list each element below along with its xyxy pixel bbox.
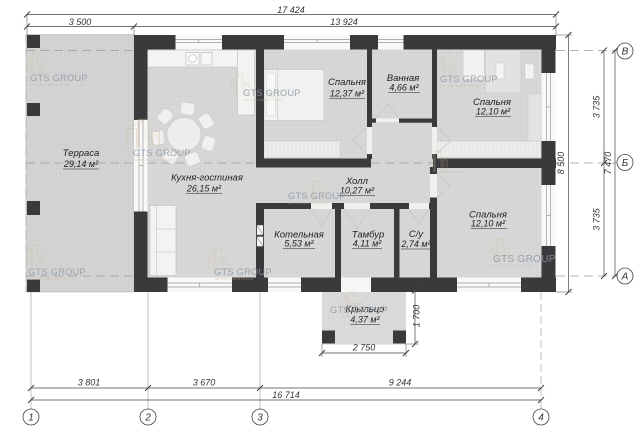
- svg-text:ВЫСТАВКА ДОМОВ РОССИИ: ВЫСТАВКА ДОМОВ РОССИИ: [28, 278, 67, 281]
- svg-text:2 750: 2 750: [352, 343, 376, 353]
- svg-text:Терраса: Терраса: [63, 148, 100, 159]
- svg-text:GTS GROUP: GTS GROUP: [133, 148, 191, 158]
- svg-text:3: 3: [257, 413, 263, 424]
- svg-text:ВЫСТАВКА ДОМОВ РОССИИ: ВЫСТАВКА ДОМОВ РОССИИ: [243, 99, 282, 102]
- svg-text:9 244: 9 244: [389, 378, 412, 388]
- svg-text:ВЫСТАВКА ДОМОВ: ВЫСТАВКА ДОМОВ: [438, 171, 464, 174]
- svg-text:3 735: 3 735: [592, 95, 602, 119]
- svg-text:4,11 м²: 4,11 м²: [353, 239, 383, 249]
- svg-text:29,14 м²: 29,14 м²: [63, 159, 99, 169]
- svg-text:12,37 м²: 12,37 м²: [330, 89, 365, 99]
- svg-text:ВЫСТАВКА ДОМОВ РОССИИ: ВЫСТАВКА ДОМОВ РОССИИ: [133, 159, 172, 162]
- svg-text:4,37 м²: 4,37 м²: [350, 315, 380, 325]
- svg-text:12,10 м²: 12,10 м²: [476, 107, 511, 117]
- svg-text:Кухня-гостиная: Кухня-гостиная: [171, 173, 243, 184]
- svg-text:В: В: [622, 47, 629, 58]
- svg-text:1 700: 1 700: [412, 305, 422, 328]
- svg-text:3 735: 3 735: [592, 207, 602, 231]
- svg-text:GTS GROUP: GTS GROUP: [214, 267, 272, 277]
- svg-text:ВЫСТАВКА ДОМОВ РОССИИ: ВЫСТАВКА ДОМОВ РОССИИ: [30, 84, 69, 87]
- svg-text:2,74 м²: 2,74 м²: [400, 239, 431, 249]
- svg-text:GTS GROUP: GTS GROUP: [288, 191, 346, 201]
- svg-text:GTS GROUP: GTS GROUP: [440, 74, 498, 84]
- svg-text:1: 1: [28, 413, 34, 424]
- svg-text:8 500: 8 500: [556, 152, 566, 175]
- svg-text:16 714: 16 714: [272, 390, 300, 400]
- svg-text:GTS GROUP: GTS GROUP: [493, 254, 556, 265]
- svg-text:4,66 м²: 4,66 м²: [389, 83, 419, 93]
- svg-text:ВЫСТАВКА ДОМОВ РОССИИ: ВЫСТАВКА ДОМОВ РОССИИ: [440, 85, 479, 88]
- svg-text:ВЫСТАВКА ДОМОВ РОССИИ: ВЫСТАВКА ДОМОВ РОССИИ: [214, 278, 253, 281]
- svg-text:Б: Б: [622, 158, 629, 169]
- svg-text:4: 4: [538, 413, 544, 424]
- svg-text:7 470: 7 470: [603, 152, 613, 175]
- svg-text:26,15 м²: 26,15 м²: [186, 184, 222, 194]
- svg-text:GTS GROUP: GTS GROUP: [30, 73, 88, 83]
- svg-text:5,53 м²: 5,53 м²: [284, 239, 314, 249]
- svg-text:ВЫСТАВКА ДОМОВ РОССИИ: ВЫСТАВКА ДОМОВ РОССИИ: [493, 265, 532, 268]
- svg-text:13 924: 13 924: [330, 17, 358, 27]
- svg-text:2: 2: [144, 413, 151, 424]
- svg-text:3 801: 3 801: [78, 378, 101, 388]
- svg-text:3 500: 3 500: [69, 17, 92, 27]
- svg-text:GTS GROUP: GTS GROUP: [243, 88, 301, 98]
- svg-text:GTS GROUP: GTS GROUP: [28, 267, 86, 277]
- svg-text:А: А: [621, 272, 629, 283]
- svg-text:Спальня: Спальня: [328, 77, 366, 88]
- svg-text:GTS GROUP: GTS GROUP: [330, 305, 388, 315]
- svg-text:ВЫСТАВКА ДОМОВ РОССИИ: ВЫСТАВКА ДОМОВ РОССИИ: [288, 202, 327, 205]
- svg-text:12,10 м²: 12,10 м²: [471, 219, 506, 229]
- svg-text:3 670: 3 670: [193, 378, 216, 388]
- svg-text:17 424: 17 424: [277, 5, 305, 15]
